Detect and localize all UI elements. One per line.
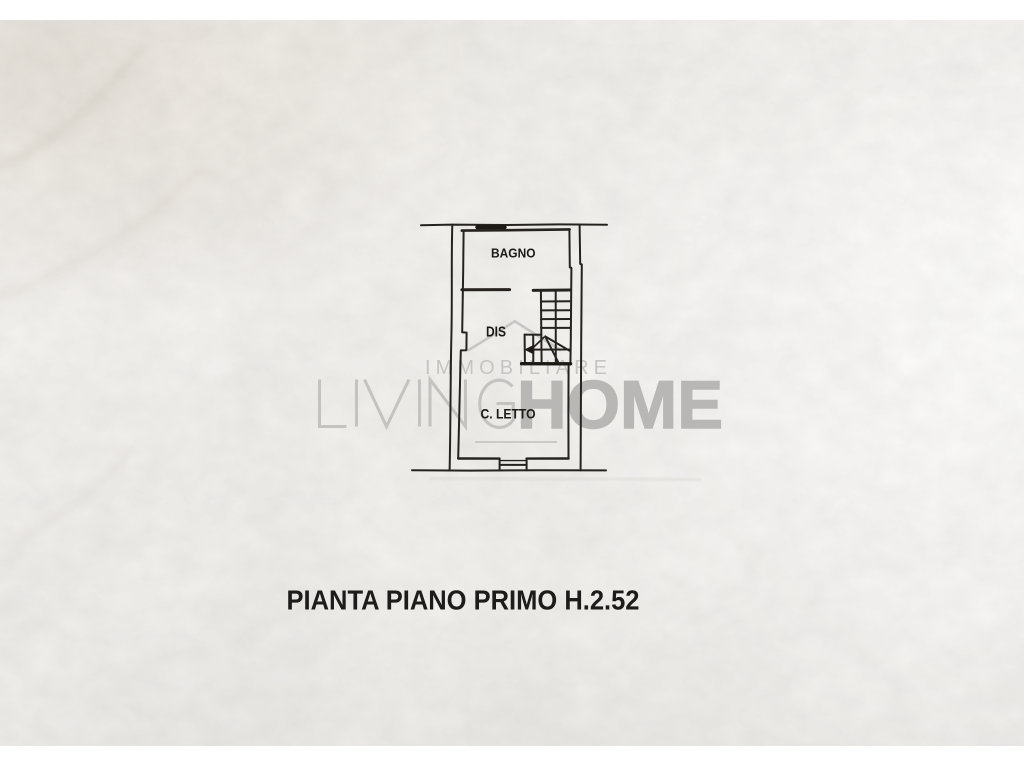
svg-text:PIANTA PIANO PRIMO H.2.52: PIANTA PIANO PRIMO H.2.52: [287, 583, 640, 615]
